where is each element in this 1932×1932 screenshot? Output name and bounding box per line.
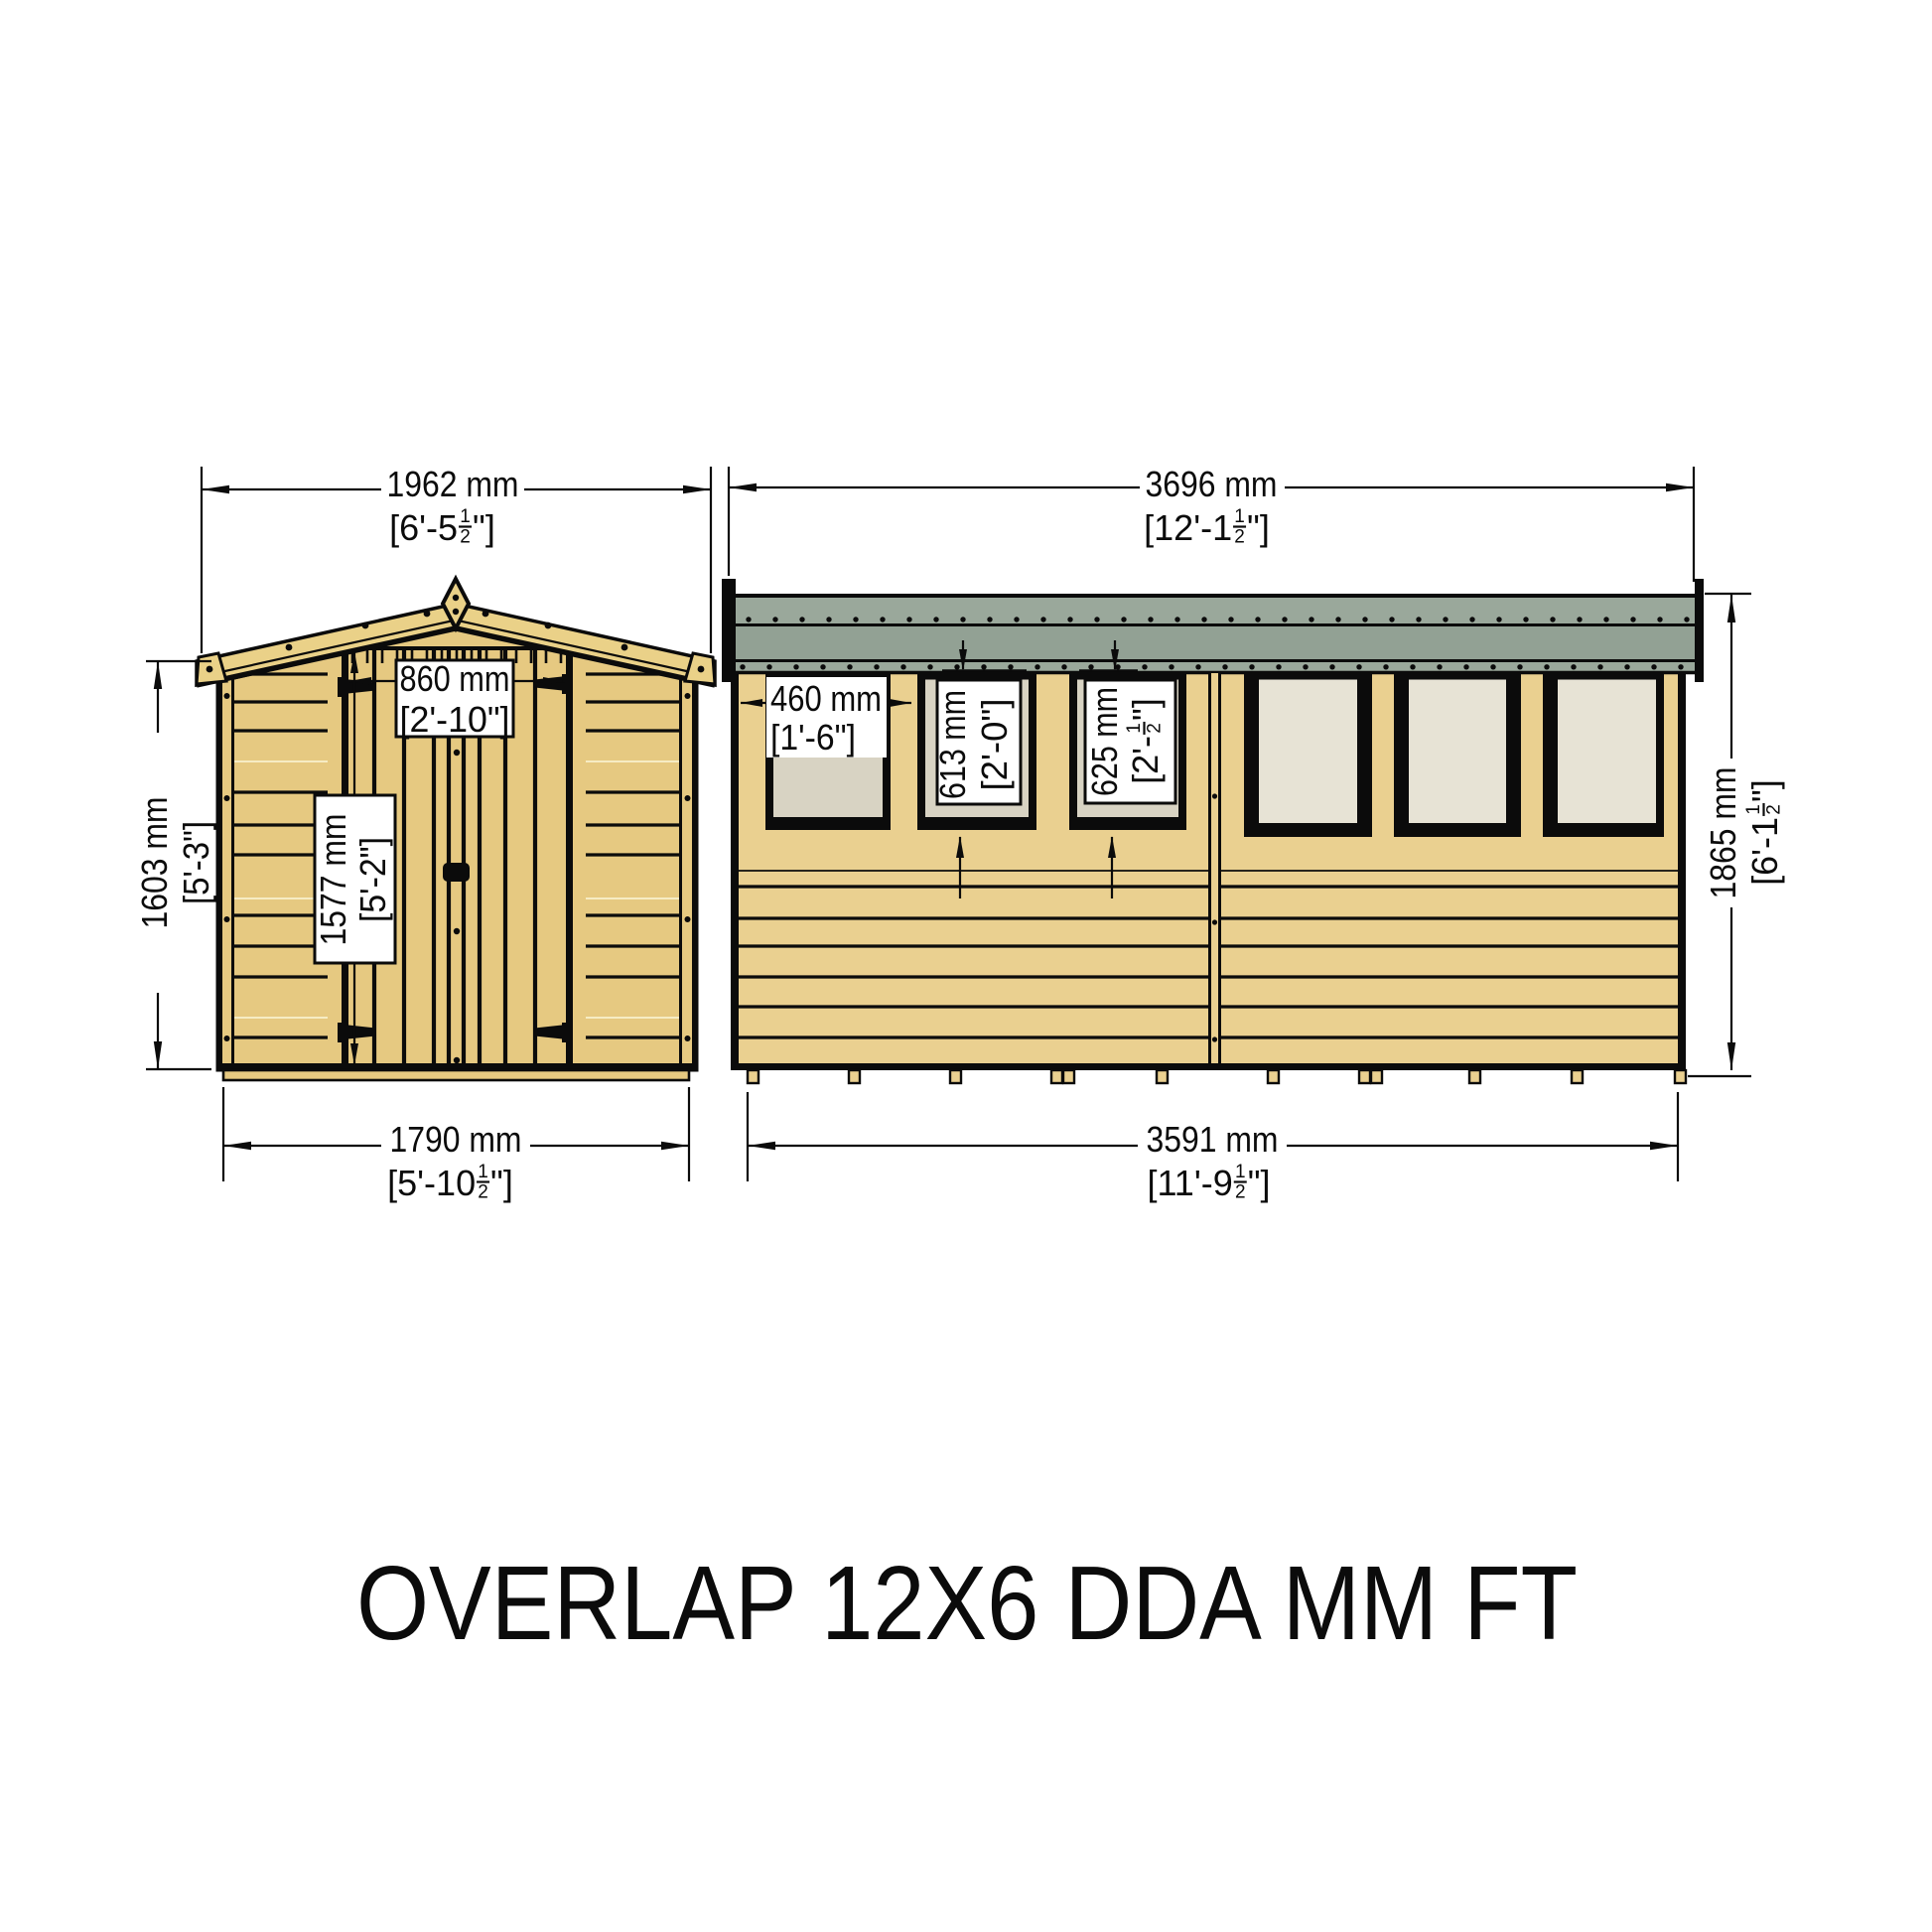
svg-text:460 mm: 460 mm: [770, 678, 882, 719]
svg-text:1: 1: [460, 506, 471, 527]
svg-text:2: 2: [1234, 527, 1245, 548]
svg-text:1603 mm: 1603 mm: [134, 797, 175, 929]
svg-text:[5'-10: [5'-10: [387, 1163, 476, 1203]
svg-text:[11'-9: [11'-9: [1147, 1163, 1232, 1203]
svg-text:860 mm: 860 mm: [400, 658, 510, 699]
svg-text:[2'-0"]: [2'-0"]: [974, 699, 1015, 791]
svg-text:[1'-6"]: [1'-6"]: [770, 717, 856, 758]
svg-text:1: 1: [1743, 804, 1764, 815]
svg-text:"]: "]: [490, 1163, 513, 1203]
svg-text:"]: "]: [1248, 1163, 1271, 1203]
svg-text:1: 1: [1124, 723, 1145, 734]
svg-text:1865 mm: 1865 mm: [1703, 767, 1743, 899]
svg-text:1: 1: [1235, 1162, 1246, 1182]
svg-text:"]: "]: [1247, 507, 1270, 548]
svg-text:1: 1: [1234, 506, 1245, 527]
svg-text:1962 mm: 1962 mm: [387, 464, 519, 504]
svg-text:[5'-3"]: [5'-3"]: [176, 821, 216, 904]
svg-text:"]: "]: [1744, 779, 1785, 802]
svg-text:3591 mm: 3591 mm: [1147, 1119, 1279, 1160]
svg-text:1577 mm: 1577 mm: [313, 814, 353, 946]
svg-text:3696 mm: 3696 mm: [1146, 464, 1278, 504]
svg-text:[2'-10"]: [2'-10"]: [400, 699, 510, 740]
svg-text:2: 2: [460, 527, 471, 548]
svg-text:[12'-1: [12'-1: [1144, 507, 1232, 548]
svg-text:OVERLAP 12X6 DDA MM FT: OVERLAP 12X6 DDA MM FT: [356, 1545, 1578, 1662]
svg-text:2: 2: [478, 1182, 488, 1203]
svg-text:2: 2: [1764, 804, 1785, 815]
svg-text:[2'-: [2'-: [1125, 736, 1166, 784]
svg-text:1790 mm: 1790 mm: [390, 1119, 522, 1160]
svg-text:613 mm: 613 mm: [932, 690, 973, 799]
svg-text:"]: "]: [473, 507, 495, 548]
svg-text:[6'-1: [6'-1: [1744, 817, 1785, 886]
svg-text:2: 2: [1145, 723, 1166, 734]
svg-text:"]: "]: [1125, 698, 1166, 721]
svg-text:[6'-5: [6'-5: [389, 507, 458, 548]
svg-text:2: 2: [1235, 1182, 1246, 1203]
svg-text:1: 1: [478, 1162, 488, 1182]
svg-text:[5'-2"]: [5'-2"]: [352, 837, 393, 922]
svg-text:625 mm: 625 mm: [1084, 687, 1125, 796]
